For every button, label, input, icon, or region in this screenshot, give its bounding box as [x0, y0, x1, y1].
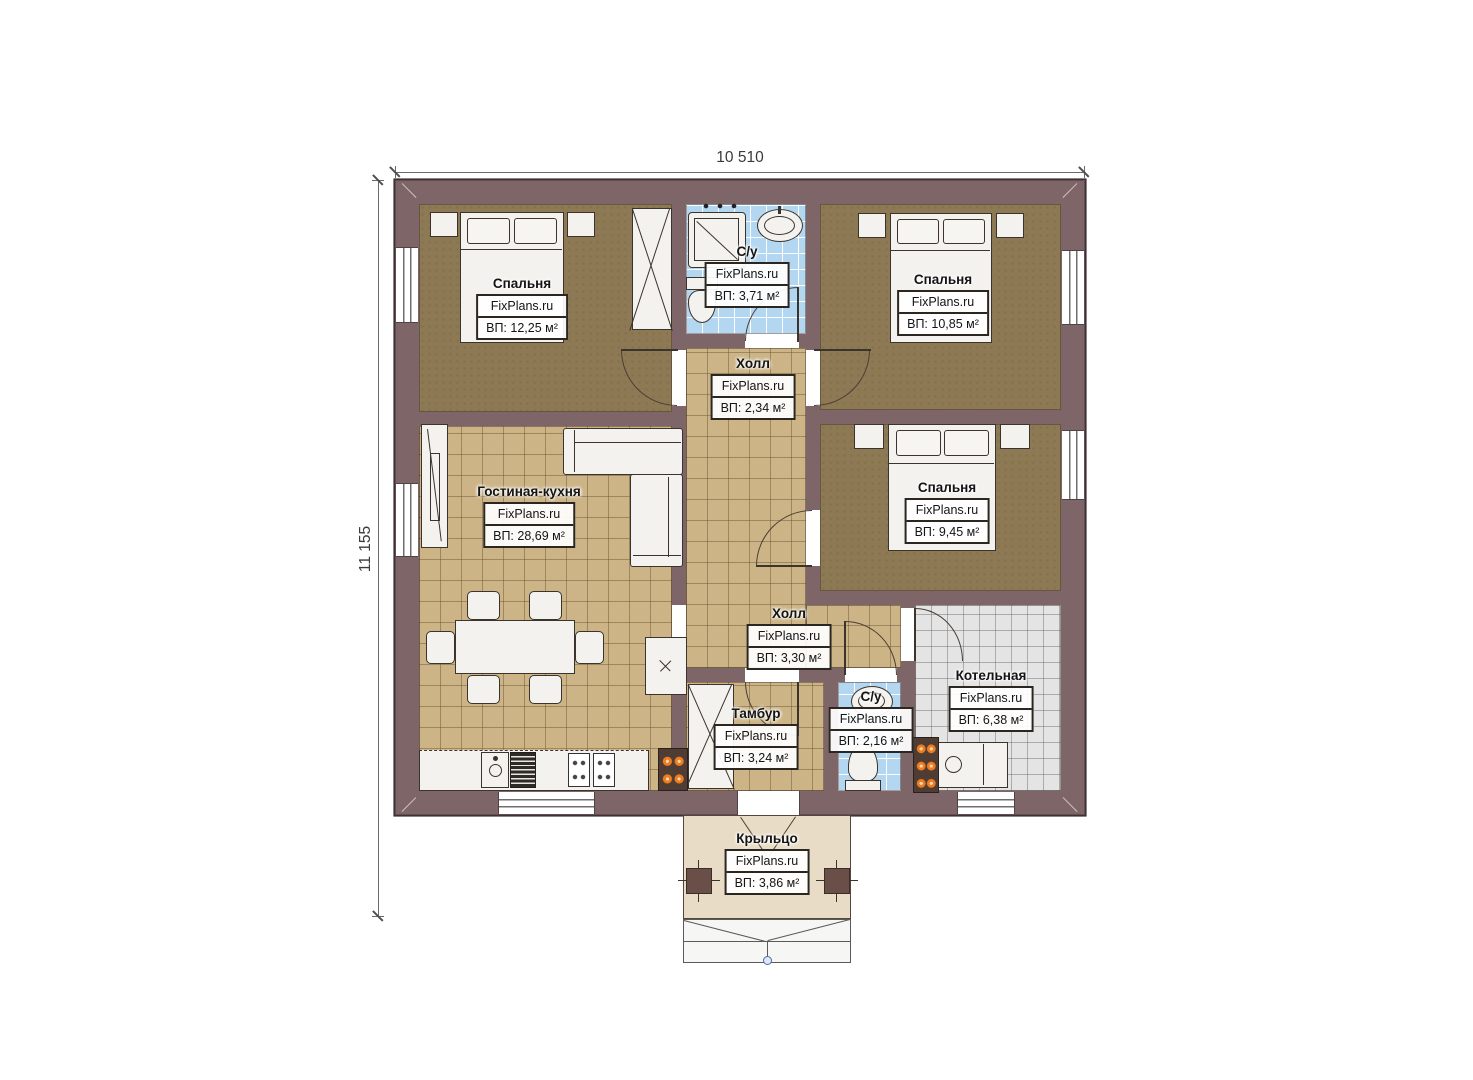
boiler-divider — [983, 744, 984, 785]
wardrobe-cross-line — [632, 209, 673, 331]
basin-tap — [778, 206, 781, 214]
brand-watermark: FixPlans.ru — [727, 851, 808, 873]
room-label-bathroom-top: С/у FixPlans.ru ВП: 3,71 м² — [705, 244, 790, 308]
nightstand — [430, 212, 458, 237]
brand-watermark: FixPlans.ru — [716, 726, 797, 748]
boiler-dial — [945, 756, 962, 773]
pillow — [467, 218, 510, 244]
pillow — [897, 219, 939, 244]
chair — [529, 675, 562, 704]
fridge — [645, 637, 687, 695]
room-name: Спальня — [476, 276, 568, 291]
pillow — [514, 218, 557, 244]
room-name: Холл — [711, 356, 796, 371]
blanket-edge — [889, 463, 994, 464]
room-name: Спальня — [897, 272, 989, 287]
window — [396, 247, 418, 323]
sofa-seat-line — [668, 477, 669, 557]
sofa-armrest-line — [633, 555, 681, 556]
door-opening — [745, 668, 799, 682]
sofa-armrest-line — [574, 430, 575, 472]
room-area: ВП: 28,69 м² — [485, 526, 573, 546]
chair — [575, 631, 604, 664]
room-area: ВП: 3,71 м² — [707, 286, 788, 306]
door-leaf — [621, 349, 678, 351]
porch-post — [686, 868, 712, 894]
room-info-box: FixPlans.ru ВП: 2,16 м² — [829, 707, 914, 753]
chair — [467, 675, 500, 704]
window — [498, 792, 595, 814]
kitchen-chimney — [658, 748, 688, 791]
room-label-bathroom-low: С/у FixPlans.ru ВП: 2,16 м² — [829, 689, 914, 753]
room-label-hall-low: Холл FixPlans.ru ВП: 3,30 м² — [747, 606, 832, 670]
stove — [568, 752, 616, 788]
room-info-box: FixPlans.ru ВП: 3,71 м² — [705, 262, 790, 308]
boiler-chimney — [913, 737, 939, 793]
brand-watermark: FixPlans.ru — [713, 376, 794, 398]
room-name: С/у — [829, 689, 914, 704]
room-info-box: FixPlans.ru ВП: 28,69 м² — [483, 502, 575, 548]
wardrobe — [632, 208, 672, 330]
chair — [529, 591, 562, 620]
window — [396, 483, 418, 557]
room-label-tambur: Тамбур FixPlans.ru ВП: 3,24 м² — [714, 706, 799, 770]
dimension-line-left — [378, 180, 379, 917]
sofa-vertical — [630, 474, 683, 567]
door-leaf — [756, 565, 812, 567]
brand-watermark: FixPlans.ru — [907, 500, 988, 522]
window — [1062, 250, 1084, 325]
stove-burner-grid — [568, 753, 590, 787]
entrance-opening — [737, 791, 800, 815]
toilet-tank — [845, 780, 881, 791]
dimension-width-label: 10 510 — [716, 149, 763, 167]
pillow — [944, 430, 989, 456]
room-info-box: FixPlans.ru ВП: 3,24 м² — [714, 724, 799, 770]
room-info-box: FixPlans.ru ВП: 9,45 м² — [905, 498, 990, 544]
floor-plan-canvas: 10 510 11 155 — [0, 0, 1473, 1080]
room-info-box: FixPlans.ru ВП: 12,25 м² — [476, 294, 568, 340]
sofa-seat-line — [574, 442, 681, 443]
sofa-horizontal — [563, 428, 683, 475]
room-label-bedroom-2: Спальня FixPlans.ru ВП: 10,85 м² — [897, 272, 989, 336]
door-leaf — [814, 349, 871, 351]
room-info-box: FixPlans.ru ВП: 3,30 м² — [747, 624, 832, 670]
washbasin — [757, 209, 803, 242]
chair — [467, 591, 500, 620]
room-name: Холл — [747, 606, 832, 621]
room-label-hall-top: Холл FixPlans.ru ВП: 2,34 м² — [711, 356, 796, 420]
window — [1062, 430, 1084, 500]
shower-taps-icon — [700, 201, 740, 211]
blanket-edge — [891, 250, 990, 251]
stove-burner-grid — [593, 753, 615, 787]
nightstand — [567, 212, 595, 237]
door-leaf — [797, 287, 799, 342]
chair — [426, 631, 455, 664]
brand-watermark: FixPlans.ru — [831, 709, 912, 731]
door-opening — [901, 608, 915, 661]
brand-watermark: FixPlans.ru — [899, 292, 987, 314]
door-leaf — [844, 621, 846, 675]
dimension-height-label: 11 155 — [357, 521, 375, 577]
brand-watermark: FixPlans.ru — [707, 264, 788, 286]
room-name: Крыльцо — [725, 831, 810, 846]
tv-unit — [421, 424, 448, 548]
nightstand — [996, 213, 1024, 238]
nightstand — [854, 424, 884, 449]
dish-drainer — [510, 752, 536, 788]
dining-table — [455, 620, 575, 674]
boiler-unit — [930, 742, 1008, 788]
room-label-bedroom-3: Спальня FixPlans.ru ВП: 9,45 м² — [905, 480, 990, 544]
door-leaf — [914, 608, 916, 661]
room-area: ВП: 2,34 м² — [713, 398, 794, 418]
wardrobe-cross-line — [629, 209, 670, 331]
room-label-porch: Крыльцо FixPlans.ru ВП: 3,86 м² — [725, 831, 810, 895]
room-info-box: FixPlans.ru ВП: 6,38 м² — [949, 686, 1034, 732]
room-name: Гостиная-кухня — [477, 484, 580, 499]
room-area: ВП: 9,45 м² — [907, 522, 988, 542]
room-name: Тамбур — [714, 706, 799, 721]
room-name: Котельная — [949, 668, 1034, 683]
brand-watermark: FixPlans.ru — [951, 688, 1032, 710]
pillow — [943, 219, 985, 244]
brand-watermark: FixPlans.ru — [749, 626, 830, 648]
kitchen-sink — [481, 752, 509, 788]
room-area: ВП: 2,16 м² — [831, 731, 912, 751]
room-label-living-kitchen: Гостиная-кухня FixPlans.ru ВП: 28,69 м² — [477, 484, 580, 548]
basin-bowl — [764, 216, 795, 235]
room-area: ВП: 3,86 м² — [727, 873, 808, 893]
room-area: ВП: 6,38 м² — [951, 710, 1032, 730]
brand-watermark: FixPlans.ru — [478, 296, 566, 318]
porch-post — [824, 868, 850, 894]
window — [957, 792, 1015, 814]
blanket-edge — [461, 249, 562, 250]
room-label-boiler: Котельная FixPlans.ru ВП: 6,38 м² — [949, 668, 1034, 732]
room-info-box: FixPlans.ru ВП: 2,34 м² — [711, 374, 796, 420]
room-area: ВП: 12,25 м² — [478, 318, 566, 338]
room-name: Спальня — [905, 480, 990, 495]
pillow — [896, 430, 941, 456]
sink-tap — [493, 756, 498, 761]
dimension-line-top — [395, 172, 1085, 173]
room-name: С/у — [705, 244, 790, 259]
room-label-bedroom-1: Спальня FixPlans.ru ВП: 12,25 м² — [476, 276, 568, 340]
room-area: ВП: 3,30 м² — [749, 648, 830, 668]
step-marker-dot — [763, 956, 772, 965]
brand-watermark: FixPlans.ru — [485, 504, 573, 526]
room-info-box: FixPlans.ru ВП: 10,85 м² — [897, 290, 989, 336]
room-area: ВП: 3,24 м² — [716, 748, 797, 768]
room-area: ВП: 10,85 м² — [899, 314, 987, 334]
sink-drain — [489, 764, 502, 777]
room-info-box: FixPlans.ru ВП: 3,86 м² — [725, 849, 810, 895]
nightstand — [1000, 424, 1030, 449]
nightstand — [858, 213, 886, 238]
